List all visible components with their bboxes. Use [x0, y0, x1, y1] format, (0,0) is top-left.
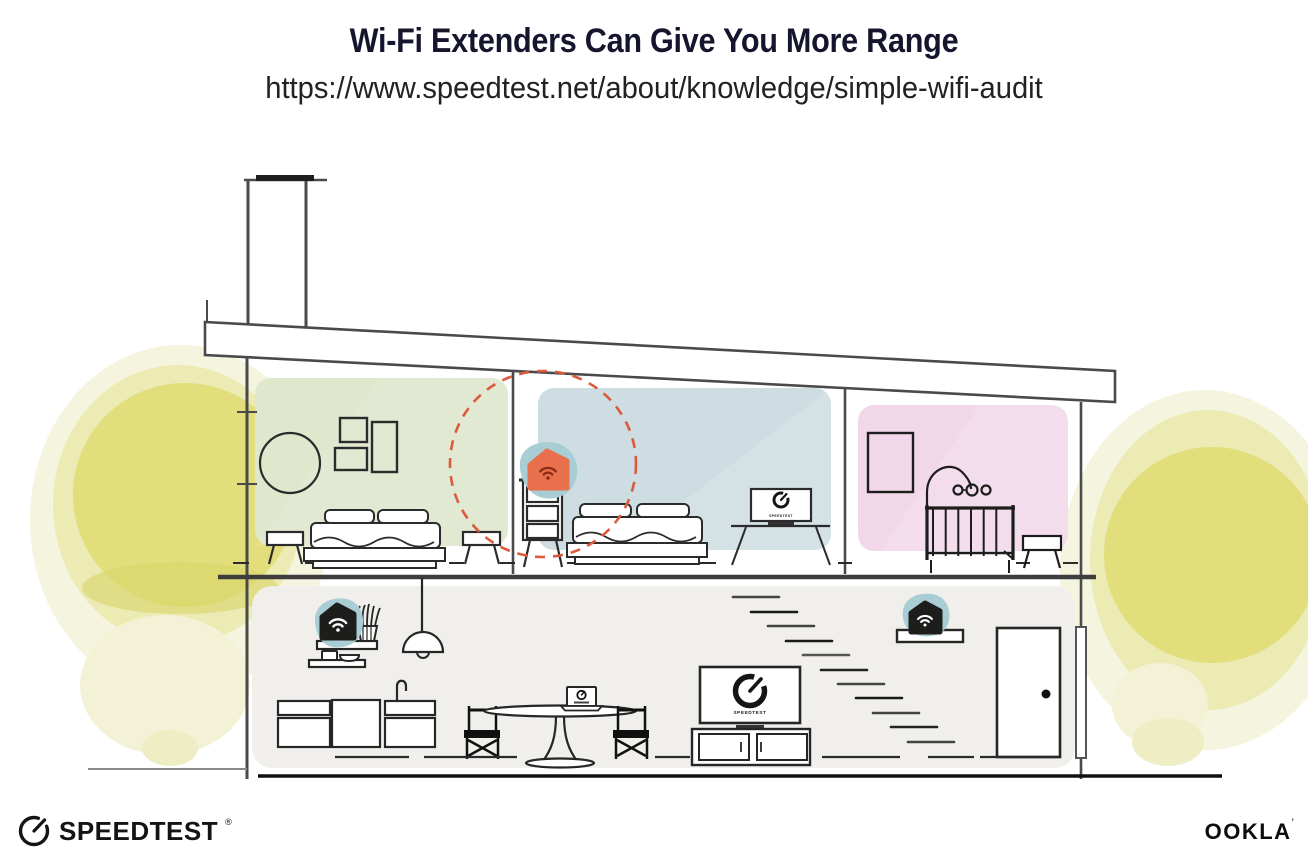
ookla-trademark: ’	[1292, 817, 1294, 829]
speedtest-trademark: ®	[225, 817, 232, 827]
media-console	[692, 729, 810, 765]
door-knob	[1042, 690, 1051, 699]
house-illustration: SPEEDTEST	[0, 0, 1308, 861]
tv-bedroom-label: SPEEDTEST	[769, 514, 793, 518]
bowl	[340, 655, 359, 661]
wifi-router-on-shelf	[315, 598, 363, 647]
foliage-right	[1060, 390, 1308, 766]
cup	[322, 651, 337, 660]
chimney	[244, 175, 327, 328]
ookla-wordmark: OOKLA	[1205, 819, 1292, 844]
infographic-canvas: Wi-Fi Extenders Can Give You More Range …	[0, 0, 1308, 861]
laptop	[561, 687, 602, 711]
wifi-extender-by-stairs	[903, 594, 950, 637]
nightstand-right	[463, 532, 500, 564]
speedtest-logo: SPEEDTEST®	[16, 813, 232, 849]
tv-living-label: SPEEDTEST	[733, 710, 766, 716]
ookla-logo: OOKLA’	[1205, 819, 1294, 845]
bed-blue	[567, 504, 707, 564]
router-body	[911, 603, 940, 632]
tv-living: SPEEDTEST	[700, 667, 800, 728]
front-door	[997, 628, 1060, 757]
speedtest-wordmark: SPEEDTEST	[59, 816, 218, 847]
door-sidelight	[1076, 627, 1086, 758]
speedtest-gauge-icon	[16, 813, 52, 849]
bed-green	[304, 510, 445, 568]
ground	[88, 769, 1222, 776]
